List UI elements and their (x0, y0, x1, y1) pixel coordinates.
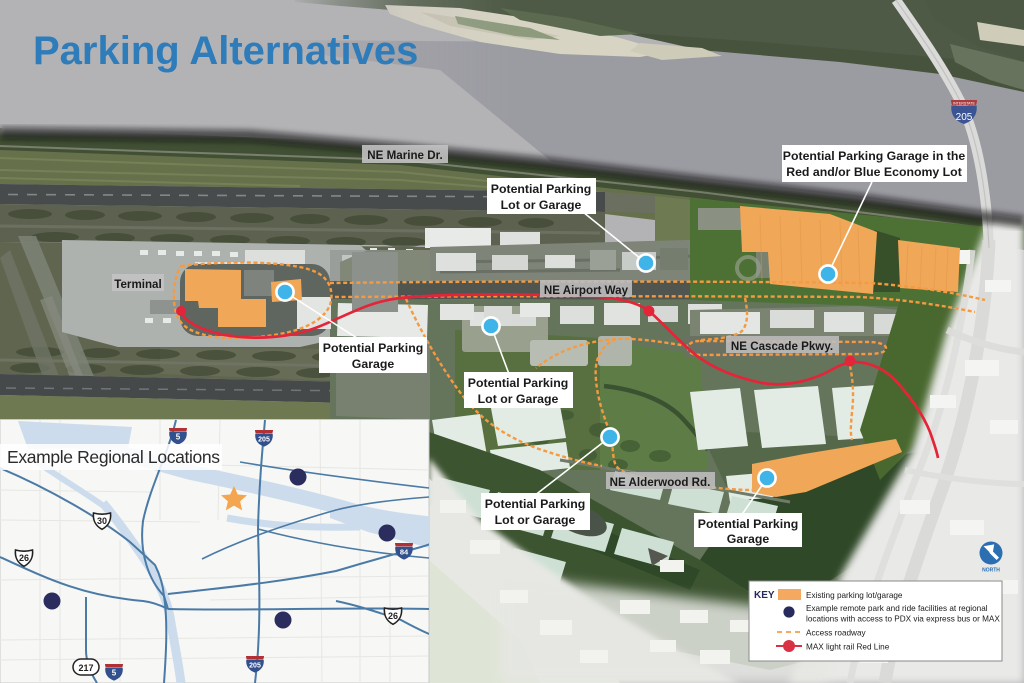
svg-text:Potential Parking: Potential Parking (485, 497, 585, 511)
svg-text:Terminal: Terminal (114, 278, 161, 291)
svg-text:INTERSTATE: INTERSTATE (953, 102, 975, 106)
svg-text:5: 5 (112, 669, 117, 678)
svg-text:locations with access to PDX v: locations with access to PDX via express… (806, 615, 1000, 624)
svg-text:26: 26 (19, 553, 29, 563)
svg-text:205: 205 (956, 112, 973, 123)
svg-text:5: 5 (176, 433, 181, 442)
svg-text:Existing parking lot/garage: Existing parking lot/garage (806, 591, 903, 600)
svg-text:Lot or Garage: Lot or Garage (478, 392, 559, 406)
svg-text:Garage: Garage (352, 357, 395, 371)
svg-text:MAX light rail Red Line: MAX light rail Red Line (806, 643, 890, 652)
svg-text:NE Airport Way: NE Airport Way (544, 284, 629, 297)
svg-text:26: 26 (388, 611, 398, 621)
svg-text:Parking Alternatives: Parking Alternatives (33, 29, 418, 73)
svg-text:Red and/or Blue Economy Lot: Red and/or Blue Economy Lot (786, 165, 962, 179)
svg-text:Access roadway: Access roadway (806, 629, 867, 638)
svg-text:Potential Parking: Potential Parking (698, 517, 798, 531)
svg-text:KEY: KEY (754, 590, 775, 601)
svg-text:Potential Parking Garage in th: Potential Parking Garage in the (783, 149, 966, 163)
svg-text:Lot or Garage: Lot or Garage (501, 198, 582, 212)
svg-text:Potential Parking: Potential Parking (323, 341, 423, 355)
svg-text:NE Marine Dr.: NE Marine Dr. (367, 149, 442, 162)
svg-text:NE Alderwood Rd.: NE Alderwood Rd. (610, 476, 711, 489)
svg-text:Lot or Garage: Lot or Garage (495, 513, 576, 527)
svg-text:205: 205 (258, 437, 270, 444)
svg-text:NORTH: NORTH (982, 568, 1000, 574)
svg-text:Example remote park and ride f: Example remote park and ride facilities … (806, 604, 988, 613)
svg-text:Potential Parking: Potential Parking (468, 376, 568, 390)
svg-text:Garage: Garage (727, 532, 770, 546)
svg-text:NE Cascade Pkwy.: NE Cascade Pkwy. (731, 340, 833, 353)
svg-text:84: 84 (400, 548, 409, 557)
svg-text:217: 217 (78, 663, 93, 673)
svg-text:Example Regional Locations: Example Regional Locations (7, 447, 220, 467)
svg-text:205: 205 (249, 663, 261, 670)
svg-text:Potential Parking: Potential Parking (491, 182, 591, 196)
svg-text:30: 30 (97, 516, 107, 526)
